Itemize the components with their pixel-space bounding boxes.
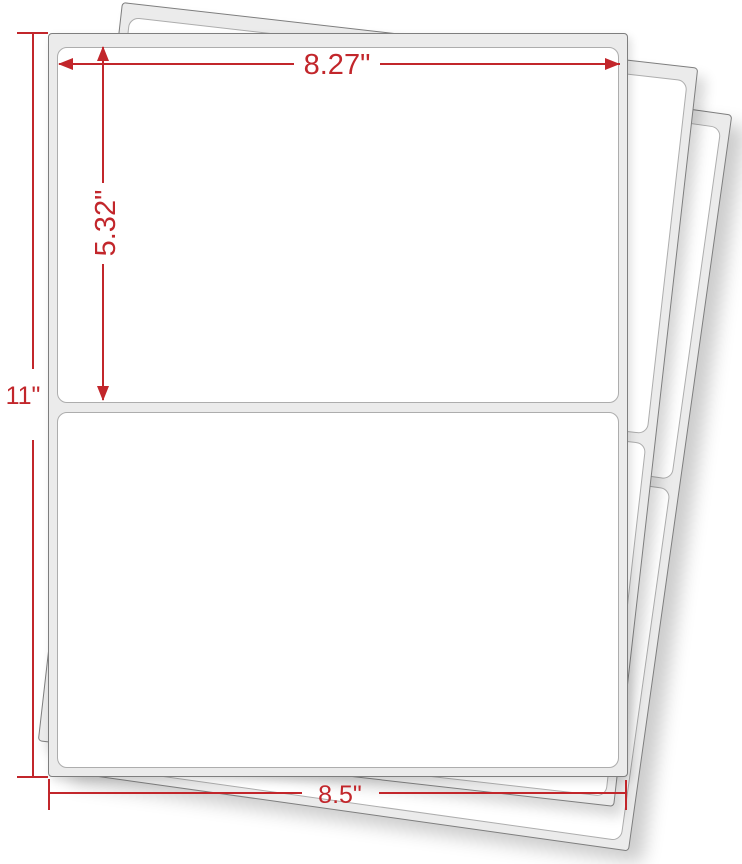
dimension-tick xyxy=(17,776,48,778)
label-sheet-front xyxy=(48,33,628,777)
label-cell xyxy=(57,412,619,768)
dimension-line xyxy=(32,440,34,778)
product-image: 8.27" 5.32" 11" 8.5" xyxy=(0,0,742,864)
dimension-tick xyxy=(17,32,48,34)
dimension-line xyxy=(32,32,34,369)
sheet-height-value: 11" xyxy=(0,383,46,409)
label-cell xyxy=(57,47,619,403)
dimension-tick xyxy=(48,779,50,810)
